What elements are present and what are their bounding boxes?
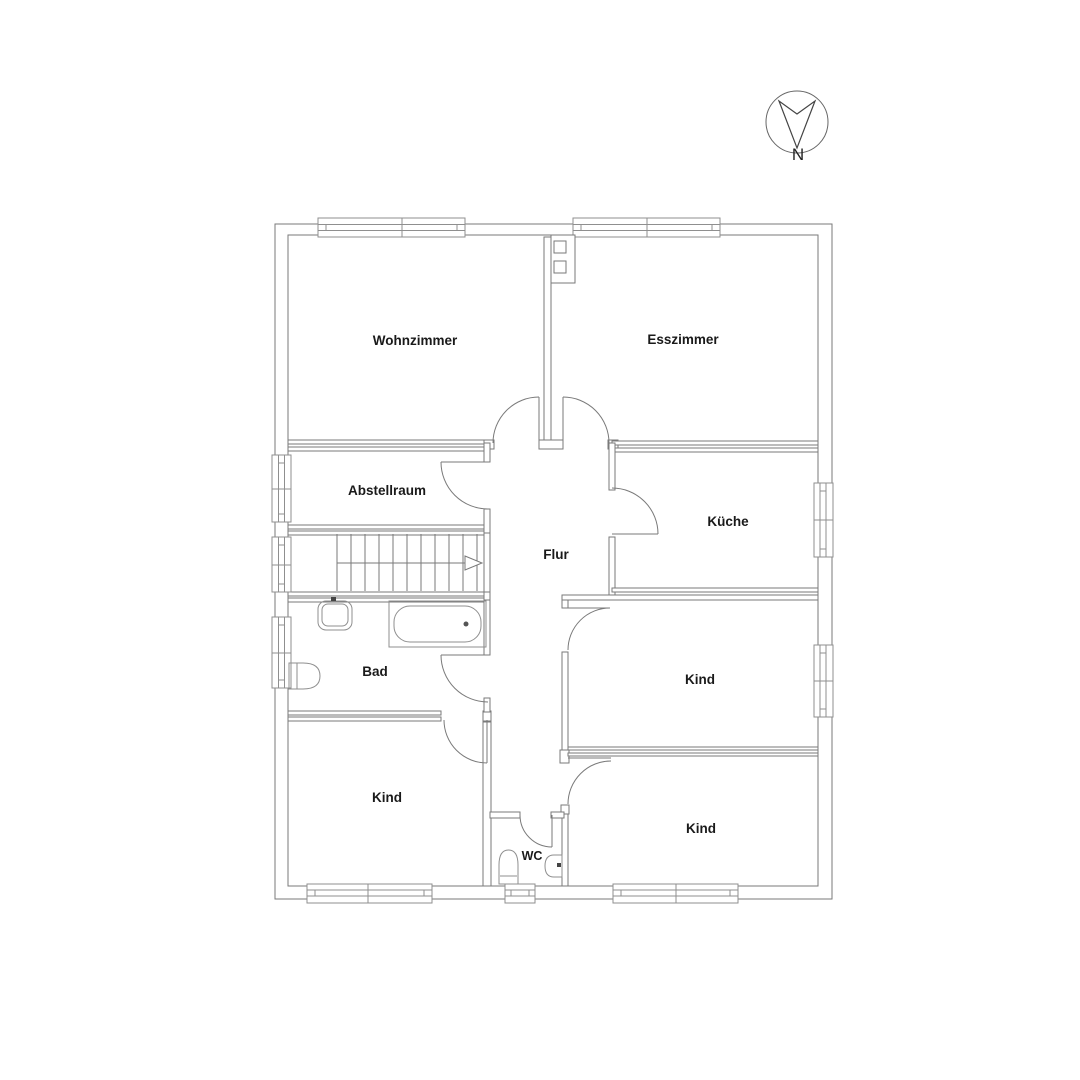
wall bbox=[484, 592, 490, 600]
window-icon bbox=[613, 884, 738, 903]
window-icon bbox=[318, 218, 465, 237]
door-swing-wohnzimmer bbox=[493, 397, 539, 443]
shaft-flue bbox=[554, 261, 566, 273]
door-swing-kueche bbox=[612, 488, 658, 534]
wall bbox=[562, 814, 568, 886]
wall bbox=[612, 588, 818, 592]
wall bbox=[551, 812, 564, 818]
wall bbox=[288, 717, 441, 721]
room-label-kueche: Küche bbox=[707, 514, 749, 529]
wall bbox=[612, 441, 818, 445]
wall bbox=[288, 592, 484, 596]
wall bbox=[288, 711, 441, 715]
fixtures bbox=[289, 597, 562, 884]
door-swing-abstellraum bbox=[441, 462, 488, 509]
wall bbox=[484, 443, 490, 462]
floor-plan-drawing: Wohnzimmer Esszimmer Abstellraum Küche F… bbox=[0, 0, 1080, 1080]
wall bbox=[609, 443, 615, 490]
wall bbox=[484, 698, 490, 712]
stairs bbox=[337, 534, 482, 591]
wall bbox=[484, 533, 490, 592]
wall bbox=[562, 600, 568, 608]
room-label-kind-bottom: Kind bbox=[686, 821, 716, 836]
wall bbox=[288, 447, 484, 451]
room-label-kind-middle: Kind bbox=[685, 672, 715, 687]
toilet-icon bbox=[499, 850, 518, 884]
wall bbox=[288, 531, 484, 535]
window-icon bbox=[573, 218, 720, 237]
room-label-flur: Flur bbox=[543, 547, 569, 562]
wall bbox=[484, 509, 490, 533]
door-swing-wc bbox=[520, 815, 552, 847]
room-label-abstellraum: Abstellraum bbox=[348, 483, 426, 498]
room-label-esszimmer: Esszimmer bbox=[647, 332, 719, 347]
wall bbox=[544, 237, 551, 443]
room-label-wohnzimmer: Wohnzimmer bbox=[373, 333, 458, 348]
window-icon bbox=[814, 645, 833, 717]
floor-plan-page: Wohnzimmer Esszimmer Abstellraum Küche F… bbox=[0, 0, 1080, 1080]
door-swing-kind-bottom bbox=[568, 758, 611, 804]
wall bbox=[568, 747, 818, 750]
toilet-icon bbox=[289, 663, 320, 689]
window-icon bbox=[272, 617, 291, 688]
doors bbox=[441, 397, 658, 847]
wall bbox=[539, 440, 563, 449]
door-swing-kind-middle bbox=[568, 608, 610, 650]
shaft-flue bbox=[554, 241, 566, 253]
room-label-kind-left: Kind bbox=[372, 790, 402, 805]
door-swing-bad bbox=[441, 655, 488, 702]
window-icon bbox=[307, 884, 432, 903]
window-icon bbox=[505, 884, 535, 903]
window-icon bbox=[272, 537, 291, 592]
door-swing-kind-left bbox=[444, 720, 487, 763]
room-label-bad: Bad bbox=[362, 664, 388, 679]
wall bbox=[562, 595, 818, 600]
north-arrow-icon bbox=[779, 101, 815, 148]
wall bbox=[562, 652, 568, 750]
bathtub-icon bbox=[389, 601, 486, 647]
room-label-wc: WC bbox=[522, 849, 543, 863]
compass-north-label: N bbox=[792, 145, 804, 164]
wall bbox=[288, 440, 484, 444]
window-icon bbox=[272, 455, 291, 522]
wall bbox=[288, 525, 484, 529]
wall bbox=[568, 753, 818, 756]
wall bbox=[490, 812, 520, 818]
door-swing-esszimmer bbox=[563, 397, 609, 443]
wall bbox=[612, 448, 818, 452]
washbasin-icon bbox=[545, 855, 562, 877]
window-icon bbox=[814, 483, 833, 557]
stair-direction-arrow bbox=[465, 556, 482, 570]
compass: N bbox=[766, 91, 828, 164]
chimney-shaft bbox=[551, 235, 575, 283]
wall bbox=[609, 537, 615, 595]
